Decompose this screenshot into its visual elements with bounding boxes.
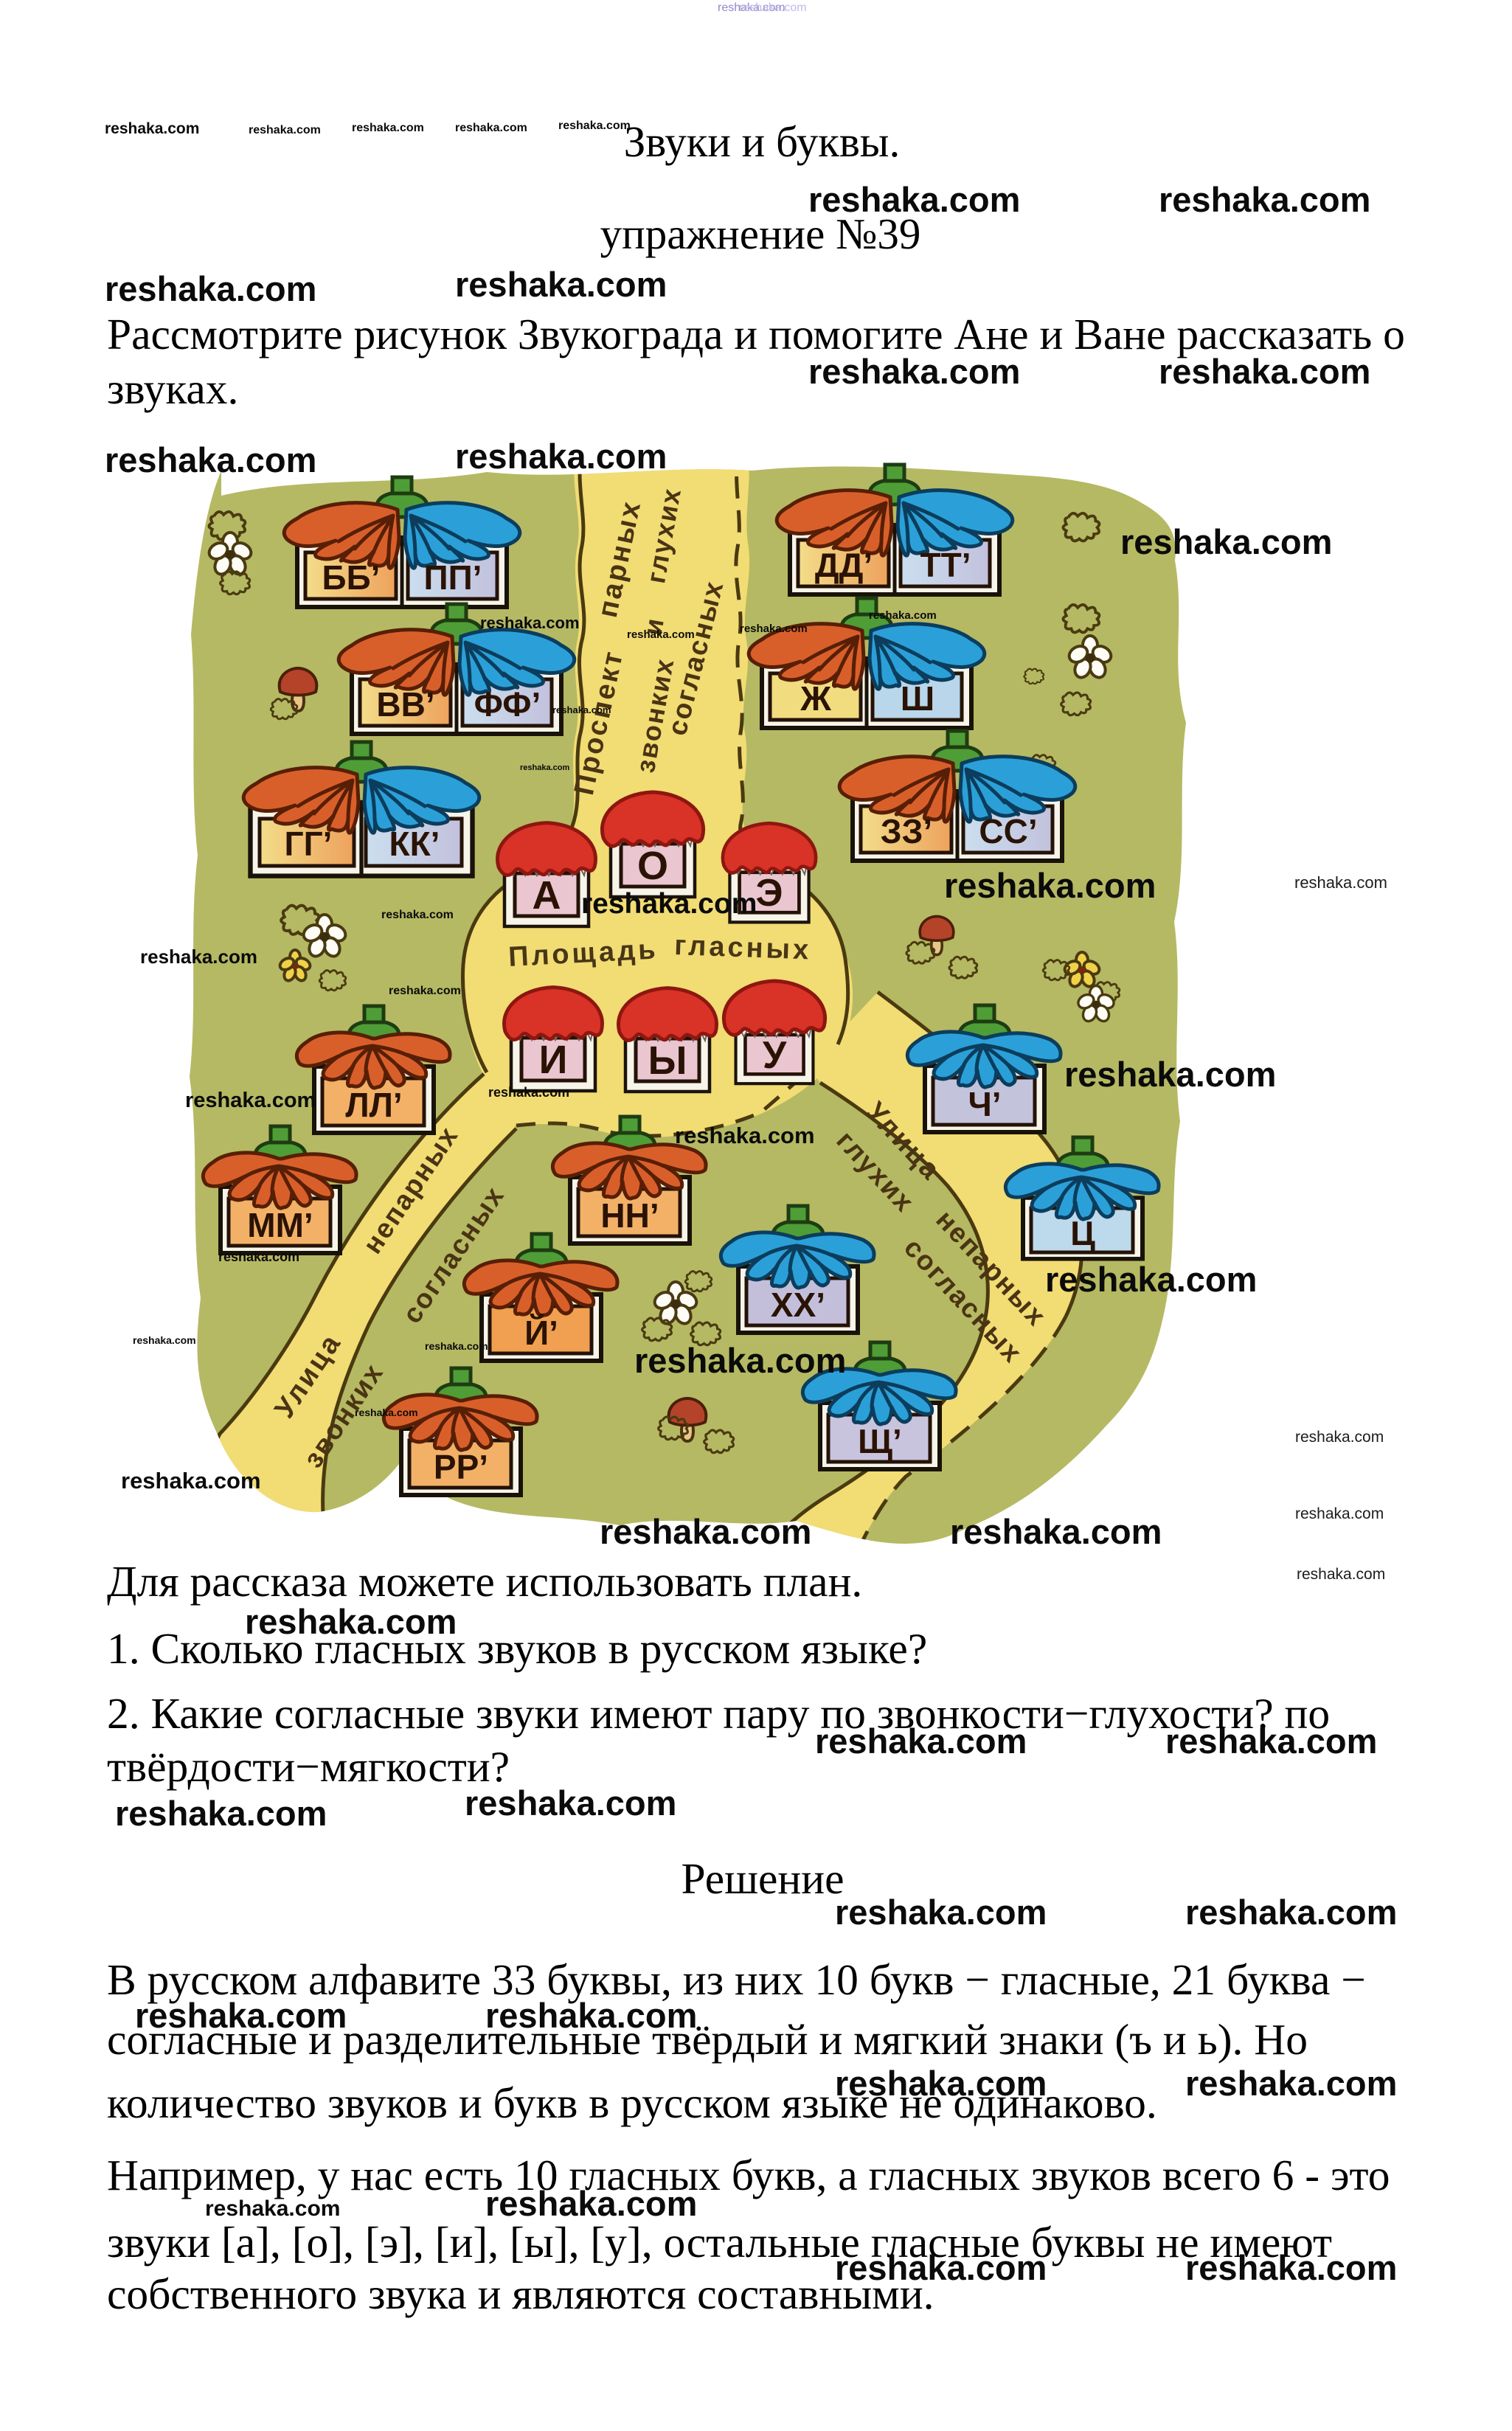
svg-text:ВВ’: ВВ’: [376, 685, 434, 724]
svg-text:НН’: НН’: [600, 1196, 659, 1235]
svg-text:ММ’: ММ’: [247, 1206, 313, 1244]
svg-text:ДД’: ДД’: [815, 546, 873, 584]
svg-text:ХХ’: ХХ’: [771, 1286, 825, 1324]
svg-text:ТТ’: ТТ’: [920, 546, 971, 584]
svg-text:Ж: Ж: [800, 679, 831, 718]
svg-text:Э: Э: [756, 872, 783, 915]
svg-text:ЛЛ’: ЛЛ’: [345, 1086, 402, 1124]
svg-text:Щ’: Щ’: [858, 1422, 902, 1460]
svg-text:У: У: [763, 1034, 787, 1077]
svg-text:О: О: [637, 844, 668, 888]
svg-text:ЗЗ’: ЗЗ’: [881, 812, 932, 850]
svg-text:ПП’: ПП’: [424, 558, 482, 597]
svg-text:РР’: РР’: [434, 1448, 488, 1486]
svg-text:ББ’: ББ’: [322, 558, 381, 597]
svg-text:Ч’: Ч’: [968, 1085, 1001, 1123]
svg-text:И: И: [539, 1038, 568, 1082]
svg-text:Ш: Ш: [901, 679, 934, 718]
svg-text:Й’: Й’: [524, 1314, 558, 1352]
svg-text:Ц: Ц: [1070, 1214, 1095, 1252]
svg-text:Ы: Ы: [648, 1038, 687, 1083]
svg-text:А: А: [533, 873, 561, 918]
svg-text:КК’: КК’: [389, 825, 440, 863]
svg-text:СС’: СС’: [979, 812, 1037, 850]
svg-text:ФФ’: ФФ’: [474, 685, 541, 724]
svg-text:гласных: гласных: [674, 930, 812, 965]
svg-text:ГГ’: ГГ’: [285, 825, 333, 863]
